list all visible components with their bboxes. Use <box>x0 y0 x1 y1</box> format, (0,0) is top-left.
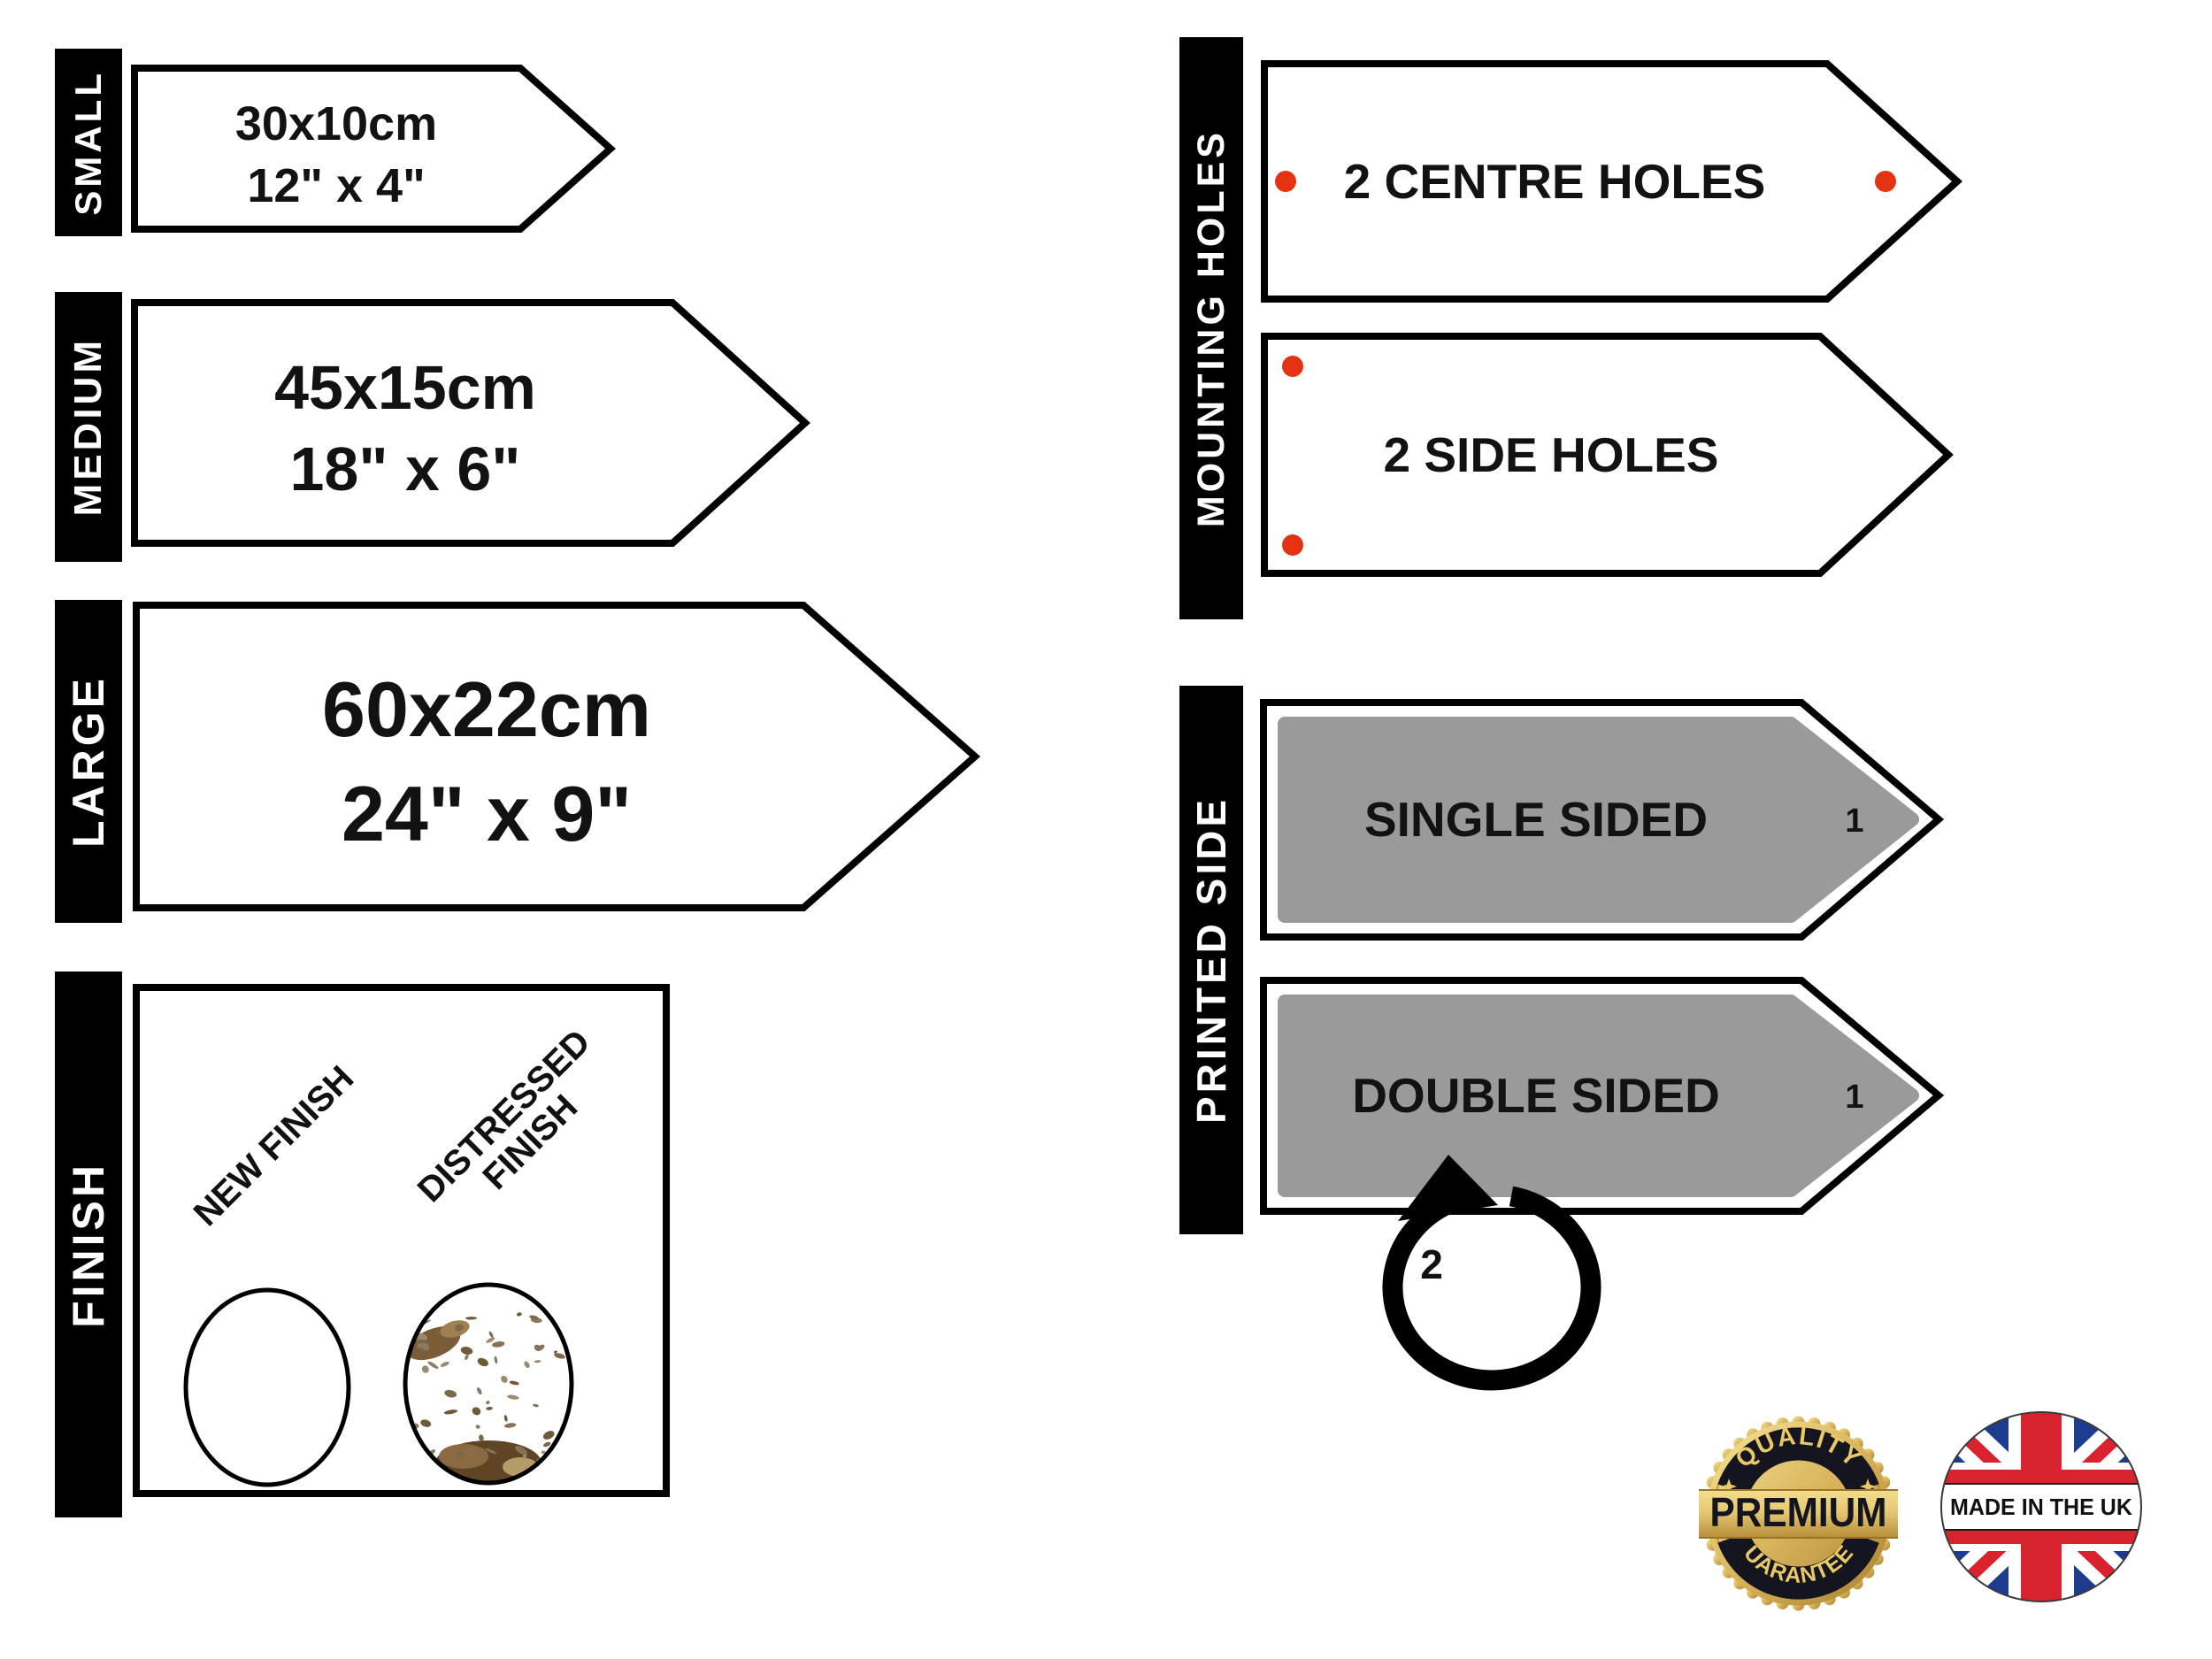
mounting-holes-label-text: MOUNTING HOLES <box>1190 129 1233 527</box>
double-sided-text: DOUBLE SIDED <box>1352 1068 1720 1123</box>
single-sided-sign: SINGLE SIDED 1 <box>1260 699 1946 941</box>
printed-side-label: PRINTED SIDE <box>1179 686 1243 1234</box>
size-sign-small: 30x10cm 12" x 4" <box>131 65 618 233</box>
centre-holes-text: 2 CENTRE HOLES <box>1344 154 1766 209</box>
flip-arrow-head-icon <box>1398 1155 1498 1221</box>
union-jack-flag: MADE IN THE UK <box>1938 1409 2146 1609</box>
finish-label-text: FINISH <box>63 1162 114 1328</box>
made-in-uk-badge-icon: MADE IN THE UK <box>1938 1409 2146 1609</box>
large-dim-inches: 24" x 9" <box>342 770 632 857</box>
badge-premium-text: PREMIUM <box>1710 1489 1887 1535</box>
size-sign-large: 60x22cm 24" x 9" <box>133 602 982 911</box>
distressed-finish-swatch <box>400 1279 577 1488</box>
flip-arrow: 2 <box>1367 1150 1632 1407</box>
single-sided-text: SINGLE SIDED <box>1364 792 1708 847</box>
sign-options-infographic: SMALL 30x10cm 12" x 4" MEDIUM 45x15cm 18… <box>0 0 2212 1659</box>
mounting-hole-dot-left <box>1275 171 1296 192</box>
side-holes-sign: 2 SIDE HOLES <box>1261 333 1955 577</box>
size-label-large: LARGE <box>55 600 122 923</box>
made-in-uk-text: MADE IN THE UK <box>1950 1494 2132 1520</box>
face-number-two: 2 <box>1420 1241 1443 1287</box>
mounting-hole-dot-top <box>1282 356 1303 377</box>
premium-quality-badge-icon: QUALITY PREMIUM GUARANTEED <box>1699 1414 1898 1613</box>
finish-label: FINISH <box>55 972 122 1517</box>
small-dim-cm: 30x10cm <box>235 97 437 150</box>
size-label-medium: MEDIUM <box>55 292 122 562</box>
centre-holes-sign: 2 CENTRE HOLES <box>1261 60 1964 303</box>
medium-dim-inches: 18" x 6" <box>290 434 521 503</box>
arrow-sign-shape <box>136 605 975 908</box>
mounting-hole-dot-bottom <box>1282 534 1303 556</box>
mounting-holes-label: MOUNTING HOLES <box>1179 37 1243 619</box>
mounting-hole-dot-right <box>1875 171 1896 192</box>
new-finish-swatch <box>180 1285 354 1490</box>
size-label-medium-text: MEDIUM <box>66 337 111 516</box>
size-sign-medium: 45x15cm 18" x 6" <box>131 299 812 547</box>
size-label-small: SMALL <box>55 49 122 236</box>
large-dim-cm: 60x22cm <box>322 665 651 753</box>
flip-arrow-loop <box>1393 1196 1591 1380</box>
plain-circle <box>186 1290 349 1485</box>
medium-dim-cm: 45x15cm <box>274 353 536 422</box>
printed-side-label-text: PRINTED SIDE <box>1187 796 1235 1124</box>
size-label-small-text: SMALL <box>67 70 110 216</box>
arrow-sign-shape <box>134 303 805 543</box>
face-number-one: 1 <box>1845 803 1863 840</box>
small-dim-inches: 12" x 4" <box>247 159 425 212</box>
face-number-one: 1 <box>1845 1079 1863 1116</box>
size-label-large-text: LARGE <box>63 675 114 848</box>
side-holes-text: 2 SIDE HOLES <box>1384 427 1719 482</box>
